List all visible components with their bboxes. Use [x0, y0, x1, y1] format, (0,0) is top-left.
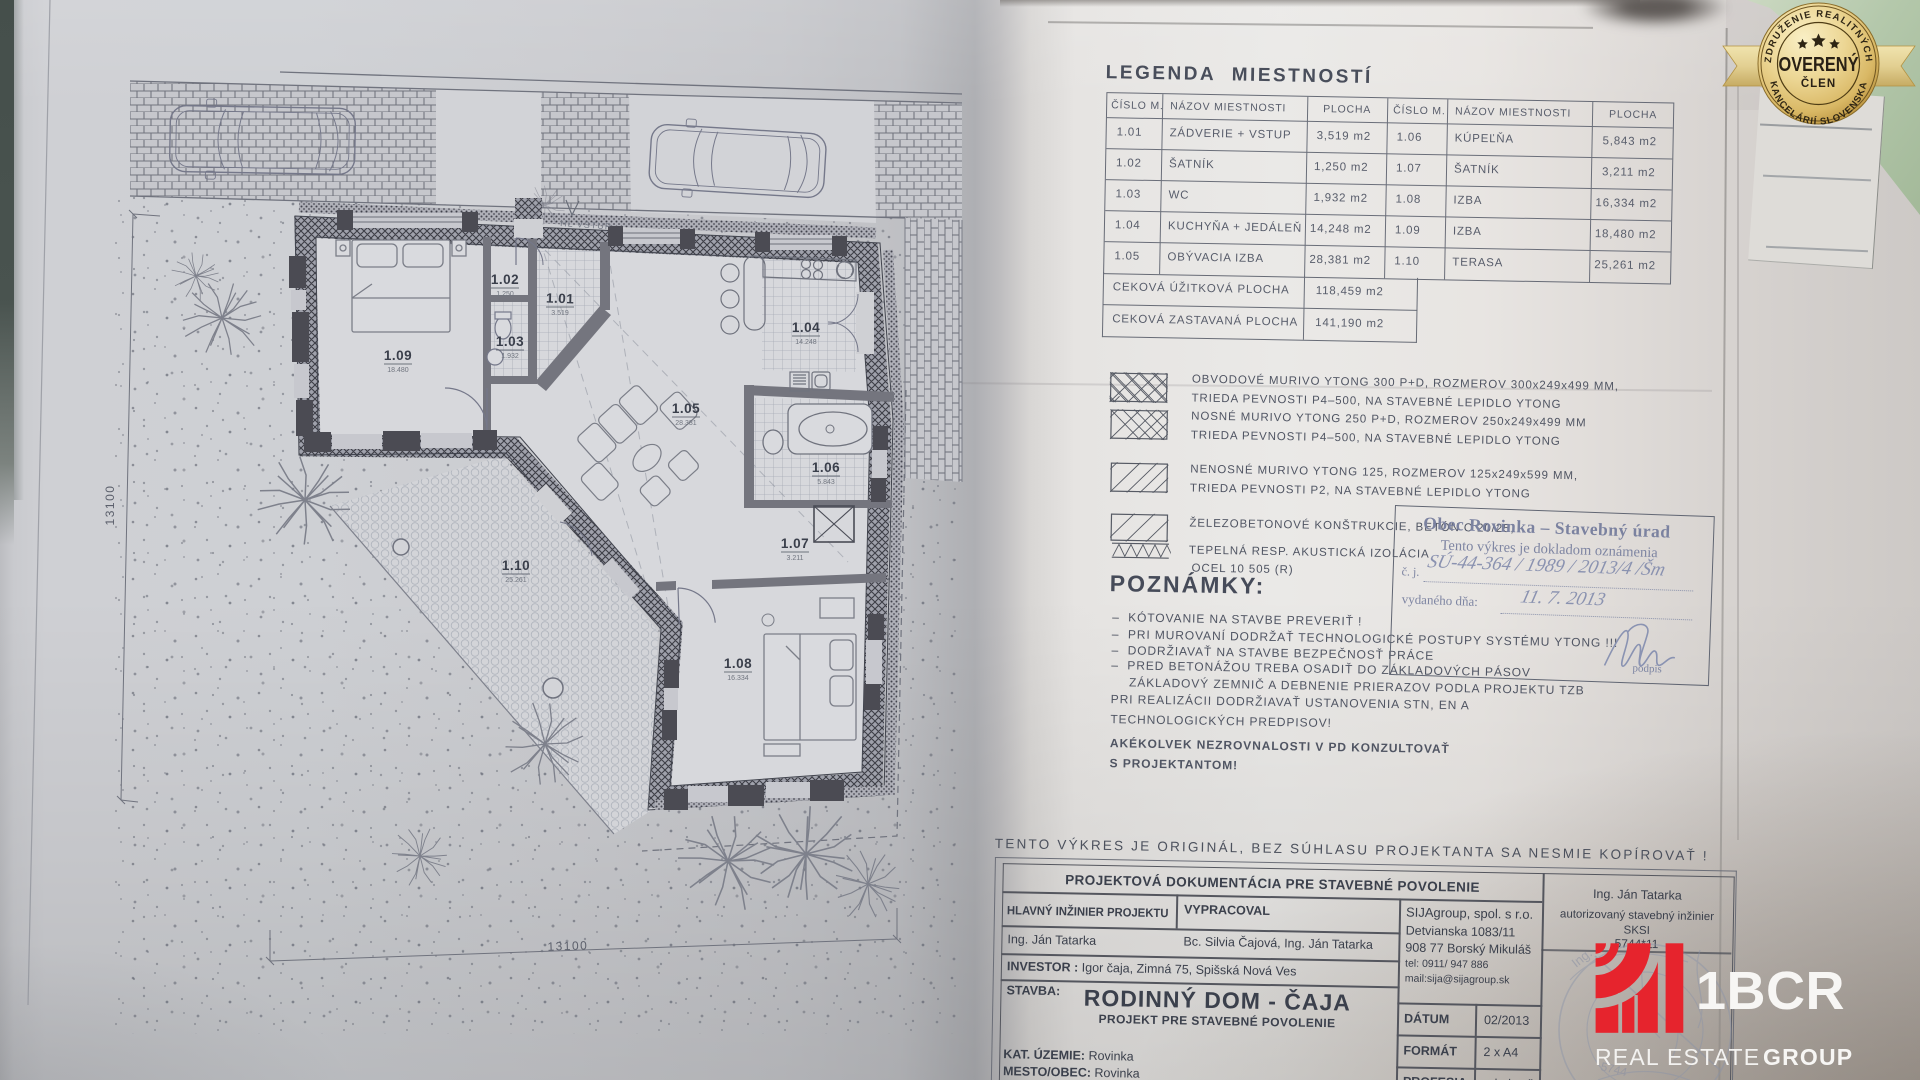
svg-text:1.05: 1.05 [672, 401, 700, 416]
svg-text:1.932: 1.932 [501, 353, 519, 360]
svg-text:ČLEN: ČLEN [1801, 77, 1836, 90]
svg-text:REAL: REAL [1595, 1044, 1660, 1070]
svg-text:5.843: 5.843 [817, 479, 835, 486]
svg-text:14.248: 14.248 [795, 339, 817, 346]
svg-text:18.480: 18.480 [387, 367, 409, 374]
svg-text:1.10: 1.10 [502, 558, 530, 573]
svg-text:16.334: 16.334 [727, 675, 749, 682]
svg-text:OVERENÝ: OVERENÝ [1779, 52, 1860, 76]
svg-text:ESTATE: ESTATE [1667, 1044, 1760, 1070]
svg-text:3.211: 3.211 [787, 555, 804, 562]
svg-text:1.08: 1.08 [724, 656, 752, 671]
svg-text:1.09: 1.09 [384, 348, 412, 363]
svg-text:1.01: 1.01 [546, 291, 575, 307]
svg-text:13100: 13100 [103, 485, 117, 526]
svg-text:3.519: 3.519 [551, 310, 569, 317]
svg-text:1.250: 1.250 [496, 291, 514, 298]
svg-text:28.381: 28.381 [675, 420, 697, 427]
svg-text:1.02: 1.02 [491, 272, 519, 287]
svg-text:1.07: 1.07 [781, 536, 809, 551]
svg-text:25.261: 25.261 [505, 577, 527, 584]
svg-text:1.03: 1.03 [496, 334, 524, 349]
svg-text:1.06: 1.06 [812, 460, 840, 475]
svg-text:1.04: 1.04 [792, 320, 820, 335]
svg-text:GROUP: GROUP [1763, 1044, 1853, 1070]
svg-text:13100: 13100 [547, 938, 588, 953]
svg-text:1BCR: 1BCR [1696, 961, 1845, 1021]
